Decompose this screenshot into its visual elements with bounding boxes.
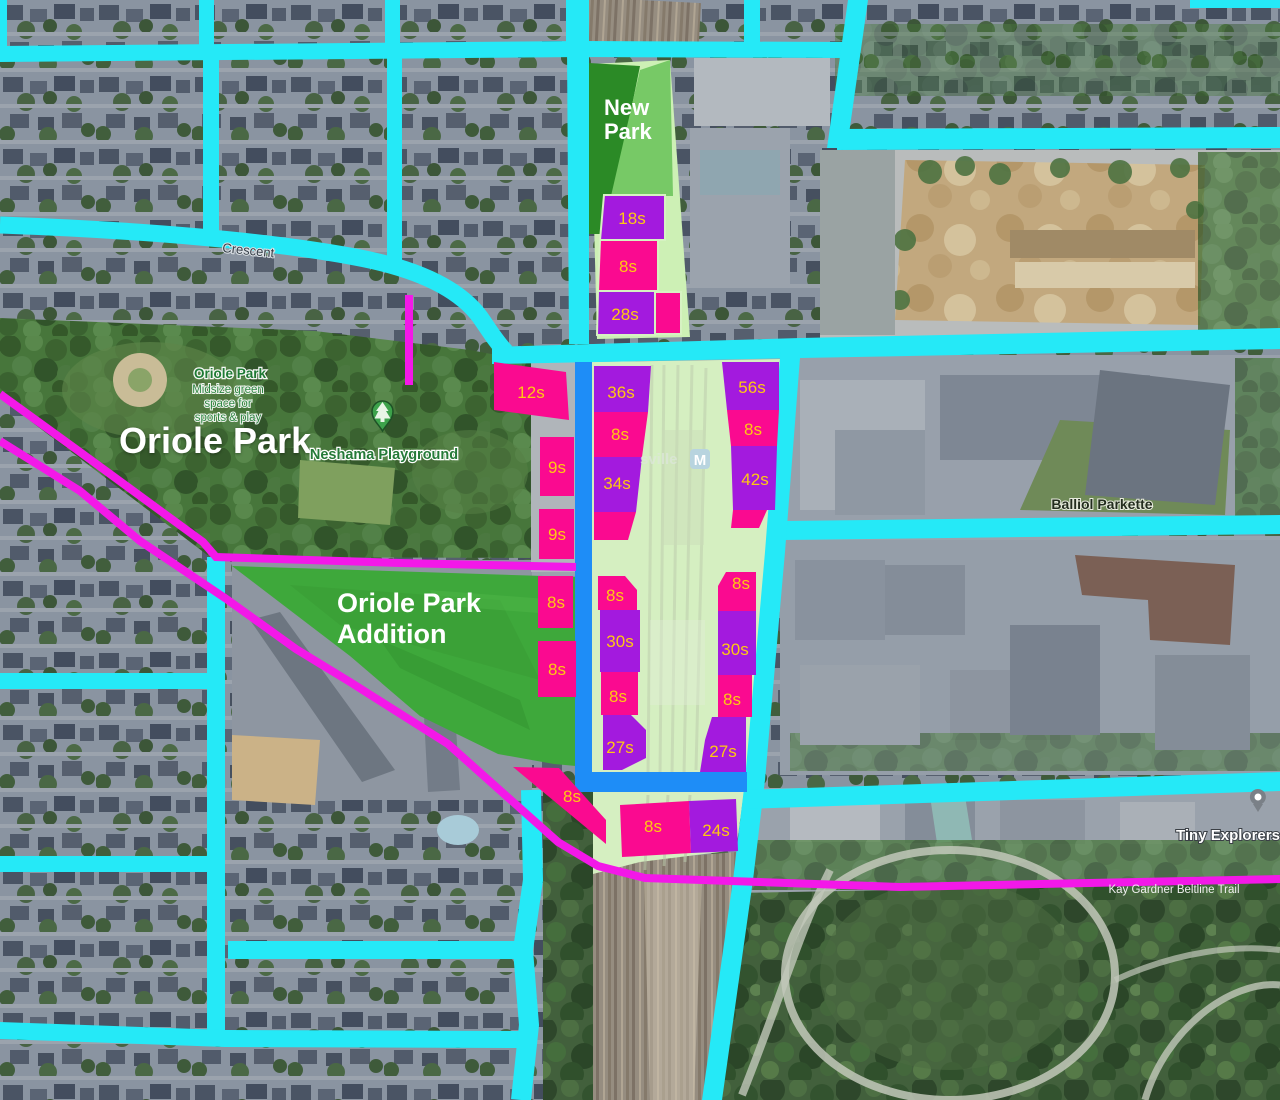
svg-text:Kay Gardner Beltline Trail: Kay Gardner Beltline Trail: [1108, 884, 1239, 896]
svg-text:Oriole Park: Oriole Park: [194, 366, 267, 381]
svg-text:space for: space for: [204, 398, 251, 410]
svg-text:9s: 9s: [548, 525, 566, 544]
svg-text:Oriole Park: Oriole Park: [119, 420, 312, 461]
svg-text:28s: 28s: [611, 305, 638, 324]
svg-text:56s: 56s: [738, 378, 765, 397]
svg-text:8s: 8s: [723, 690, 741, 709]
svg-text:8s: 8s: [732, 574, 750, 593]
svg-text:8s: 8s: [609, 687, 627, 706]
svg-text:New: New: [604, 95, 650, 120]
svg-text:8s: 8s: [606, 586, 624, 605]
svg-text:42s: 42s: [741, 470, 768, 489]
svg-text:Park: Park: [604, 119, 652, 144]
svg-text:27s: 27s: [606, 738, 633, 757]
svg-text:8s: 8s: [619, 257, 637, 276]
svg-text:8s: 8s: [744, 420, 762, 439]
svg-text:8s: 8s: [563, 787, 581, 806]
svg-text:18s: 18s: [618, 209, 645, 228]
svg-text:9s: 9s: [548, 458, 566, 477]
svg-text:Balliol Parkette: Balliol Parkette: [1051, 496, 1152, 512]
svg-text:36s: 36s: [607, 383, 634, 402]
svg-text:M: M: [694, 452, 707, 469]
svg-text:8s: 8s: [644, 817, 662, 836]
svg-text:8s: 8s: [547, 593, 565, 612]
svg-text:24s: 24s: [702, 821, 729, 840]
svg-text:30s: 30s: [721, 640, 748, 659]
svg-text:8s: 8s: [611, 425, 629, 444]
svg-text:34s: 34s: [603, 474, 630, 493]
svg-text:Midsize green: Midsize green: [192, 384, 264, 396]
svg-text:12s: 12s: [517, 383, 544, 402]
svg-text:Addition: Addition: [337, 619, 446, 649]
svg-text:Tiny Explorers A: Tiny Explorers A: [1176, 827, 1280, 844]
svg-text:30s: 30s: [606, 632, 633, 651]
svg-text:Oriole Park: Oriole Park: [337, 588, 482, 618]
svg-text:8s: 8s: [548, 660, 566, 679]
svg-text:sville: sville: [640, 451, 678, 468]
svg-text:Neshama Playground: Neshama Playground: [310, 447, 458, 463]
svg-text:27s: 27s: [709, 742, 736, 761]
